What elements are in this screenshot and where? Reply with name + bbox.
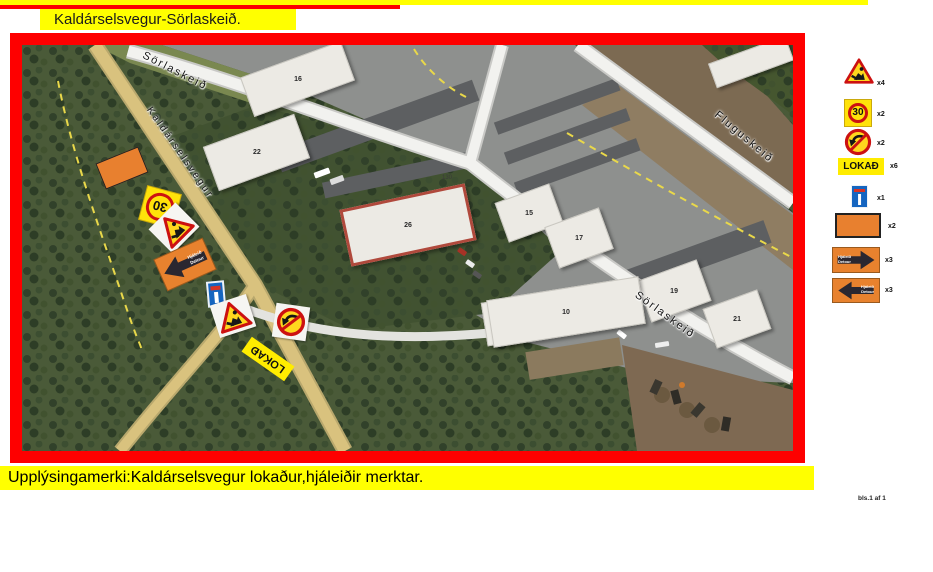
title-box: Kaldárselsvegur-Sörlaskeið.: [40, 9, 296, 30]
roadwork-icon: [844, 58, 874, 85]
dead-end-glyph-bar: [854, 189, 865, 193]
building-number: 17: [575, 235, 583, 242]
legend-count: x1: [877, 195, 885, 202]
road-closed-text: LOKAÐ: [843, 161, 879, 172]
legend-count: x6: [890, 163, 898, 170]
lot-number-label: 130: [442, 175, 452, 181]
building-number: 16: [294, 76, 302, 83]
page-indicator: bls.1 af 1: [858, 495, 886, 502]
speed-30-value: 30: [852, 107, 863, 118]
legend-item-no-left-turn: [844, 128, 872, 161]
detour-text-line2: Detour: [861, 290, 874, 295]
legend-count: x2: [877, 140, 885, 147]
no-left-turn-icon: [274, 305, 308, 339]
aerial-map: 16 22 26 15 17 19 21 10 Kaldárselsvegur …: [22, 45, 793, 451]
legend-item-roadwork: [844, 58, 874, 90]
legend-count: x4: [877, 80, 885, 87]
legend-item-road-closed: LOKAÐ: [838, 158, 884, 175]
dead-end-glyph-stem: [214, 292, 219, 304]
legend-item-detour-right: Hjáleið Detour: [833, 248, 879, 272]
legend-item-detour-left: Hjáleið Detour: [833, 279, 879, 302]
building-number: 19: [670, 288, 678, 295]
legend-item-speed30: 30: [845, 100, 871, 126]
map-frame: 16 22 26 15 17 19 21 10 Kaldárselsvegur …: [10, 33, 805, 463]
no-left-turn-sign-map: [272, 303, 310, 341]
building-number: 21: [733, 316, 741, 323]
footer-info-bar: Upplýsingamerki:Kaldárselsvegur lokaður,…: [0, 466, 814, 490]
speed-30-circle: 30: [848, 103, 869, 124]
sign-legend: x4 30 x2 x2 LOKAÐ x6 x1 x2 Hjáleið Detou…: [830, 58, 933, 318]
dead-end-glyph-stem: [858, 194, 862, 205]
building-number: 26: [404, 222, 412, 229]
no-left-turn-icon: [844, 128, 872, 156]
dead-end-glyph-bar: [210, 285, 220, 290]
legend-count: x2: [877, 111, 885, 118]
legend-count: x3: [885, 287, 893, 294]
building-number: 15: [525, 210, 533, 217]
legend-item-work-area: [835, 213, 881, 238]
legend-count: x3: [885, 257, 893, 264]
page-title: Kaldárselsvegur-Sörlaskeið.: [54, 11, 241, 28]
detour-text-line2: Detour: [838, 260, 851, 265]
legend-item-dead-end: [851, 185, 868, 208]
legend-count: x2: [888, 223, 896, 230]
building-number: 10: [562, 309, 570, 316]
building-number: 22: [253, 149, 261, 156]
footer-info-text: Upplýsingamerki:Kaldárselsvegur lokaður,…: [8, 469, 423, 487]
